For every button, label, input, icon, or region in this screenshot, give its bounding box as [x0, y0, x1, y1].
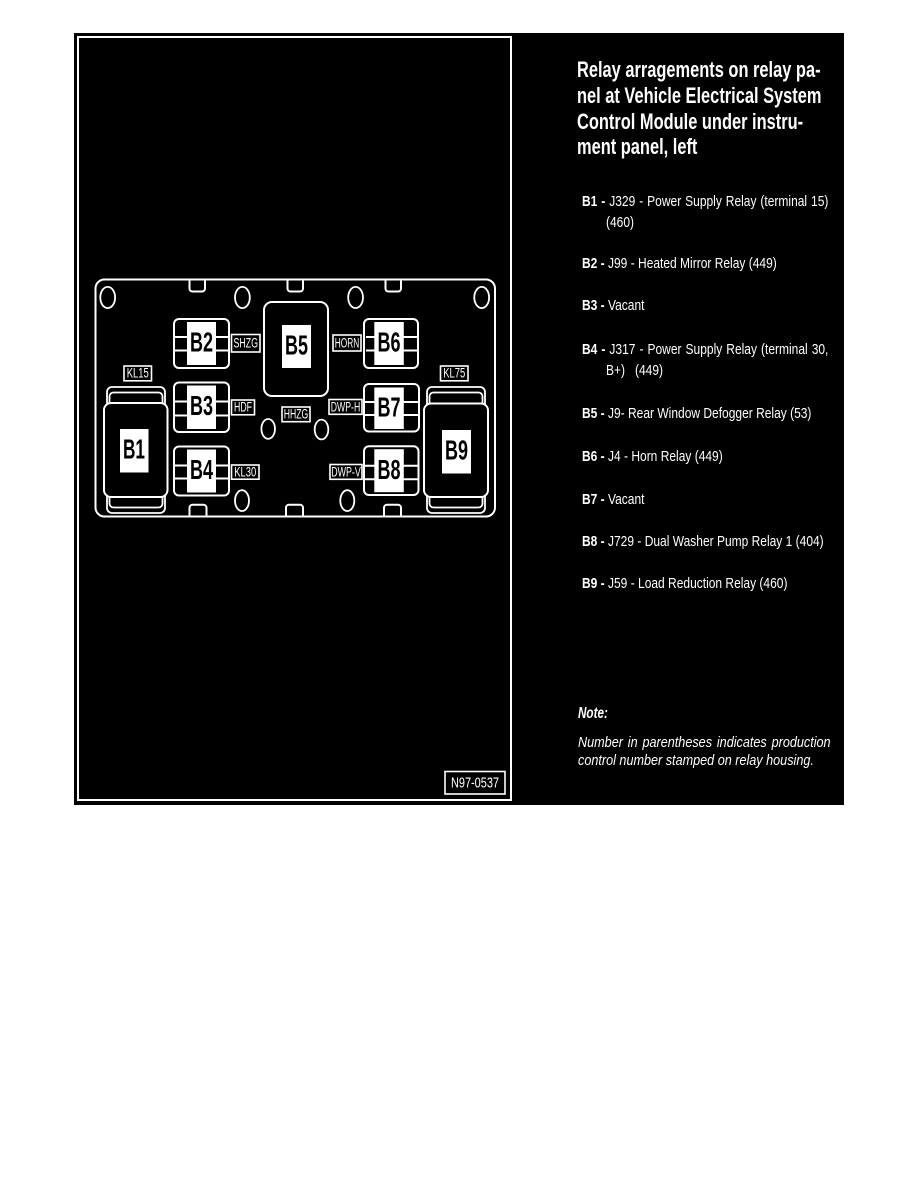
svg-text:B4: B4: [190, 454, 213, 485]
svg-text:HHZG: HHZG: [284, 407, 309, 422]
svg-text:B3: B3: [190, 390, 213, 421]
svg-text:DWP-H: DWP-H: [331, 399, 361, 414]
svg-text:N97-0537: N97-0537: [451, 775, 499, 791]
svg-text:SHZG: SHZG: [233, 336, 258, 351]
svg-text:B7: B7: [378, 392, 401, 423]
svg-text:KL75: KL75: [443, 366, 465, 381]
svg-text:KL15: KL15: [127, 366, 149, 381]
svg-text:B5: B5: [285, 330, 308, 361]
svg-text:B6: B6: [378, 327, 401, 358]
svg-text:KL30: KL30: [234, 464, 256, 479]
svg-text:B8: B8: [378, 454, 401, 485]
svg-text:HORN: HORN: [335, 335, 360, 350]
svg-text:HDF: HDF: [234, 400, 252, 415]
svg-text:B2: B2: [190, 327, 213, 358]
svg-text:B1: B1: [123, 434, 145, 465]
svg-text:B9: B9: [445, 435, 468, 466]
svg-text:DWP-V: DWP-V: [331, 464, 361, 479]
